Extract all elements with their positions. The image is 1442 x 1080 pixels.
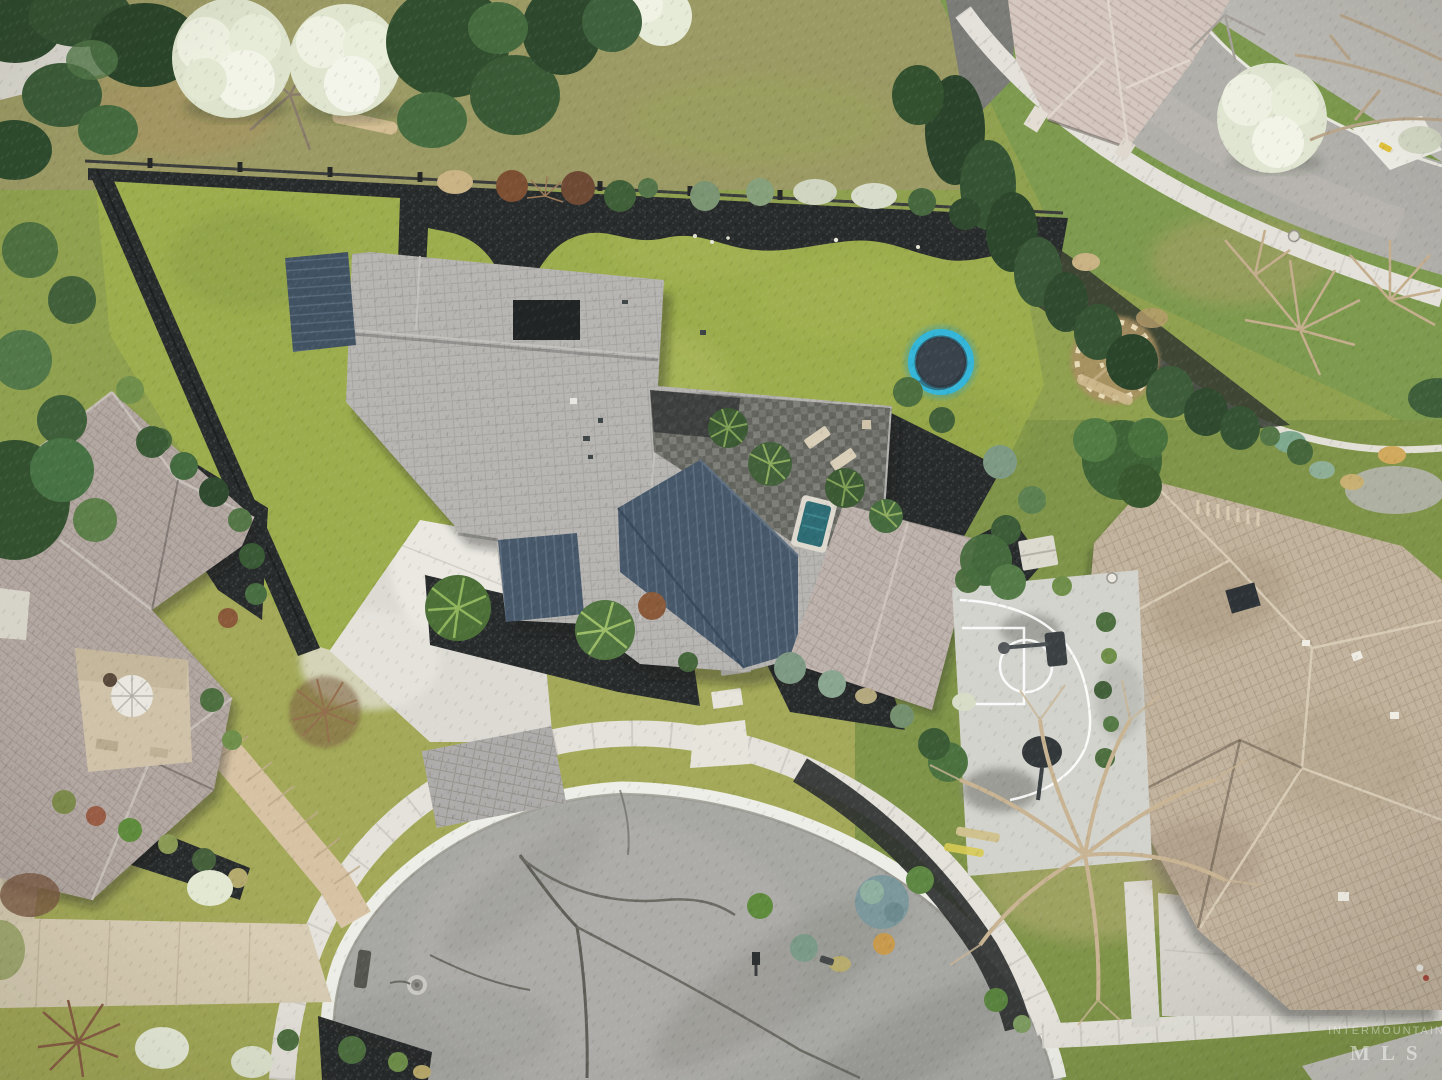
watermark-line2: MLS [1350, 1041, 1429, 1065]
aerial-photo: INTERMOUNTAIN MLS [0, 0, 1442, 1080]
watermark-line1: INTERMOUNTAIN [1328, 1025, 1442, 1037]
